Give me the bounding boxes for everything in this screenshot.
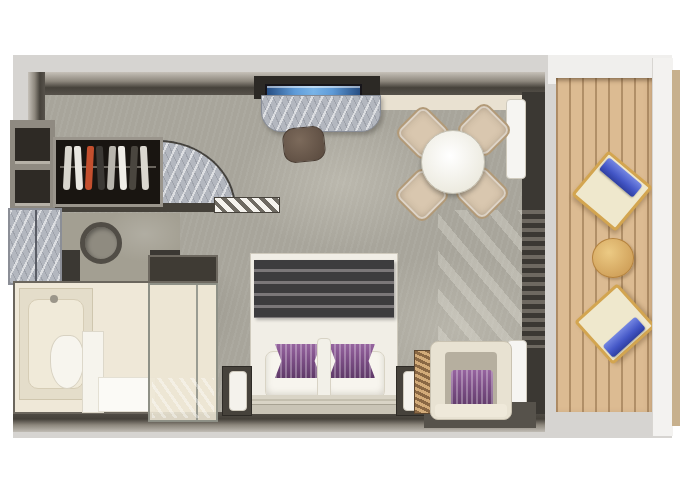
bed-platform <box>246 404 402 414</box>
bed-blanket <box>254 260 394 318</box>
armchair-pillow <box>451 370 493 408</box>
lamp-icon <box>229 371 247 411</box>
curtain-stack <box>522 210 545 348</box>
neighbor-wood-strip <box>672 70 680 426</box>
floorplan-image <box>0 0 680 486</box>
bathtub-faucet-icon <box>50 295 58 303</box>
basin-sink <box>80 222 122 264</box>
nightstand-left <box>222 366 252 416</box>
garment-icon <box>96 146 105 190</box>
marble-desk <box>261 95 381 132</box>
garment-icon <box>129 146 138 190</box>
dining-table <box>421 130 485 194</box>
armchair <box>430 341 512 420</box>
garment-icon <box>107 146 116 190</box>
shower <box>148 283 218 422</box>
entry-door-leaf <box>214 197 280 213</box>
cabinet-door-split <box>35 210 37 283</box>
balcony-outer-wall <box>652 58 673 436</box>
bed <box>250 253 398 413</box>
bed-pillow-purple <box>329 344 375 378</box>
garment-icon <box>85 146 94 190</box>
armchair-front <box>435 404 507 417</box>
wall-stub <box>62 250 80 284</box>
garment-icon <box>118 146 127 190</box>
window-sill <box>378 95 522 110</box>
garment-icon <box>140 146 149 190</box>
toilet <box>50 335 84 389</box>
shelf-cubby <box>15 170 50 206</box>
shower-sparkle <box>152 378 214 418</box>
balcony-table <box>592 238 634 278</box>
stool <box>281 125 326 164</box>
shower-top-cabinet <box>148 255 218 283</box>
bed-pillow-purple <box>275 344 321 378</box>
marble-cabinet <box>8 208 62 285</box>
shelf-unit <box>10 120 55 212</box>
curtain-top-icon <box>506 99 526 179</box>
shelf-cubby <box>15 128 50 164</box>
garment-icon <box>74 146 83 190</box>
garment-icon <box>63 146 72 190</box>
wardrobe <box>53 137 163 207</box>
